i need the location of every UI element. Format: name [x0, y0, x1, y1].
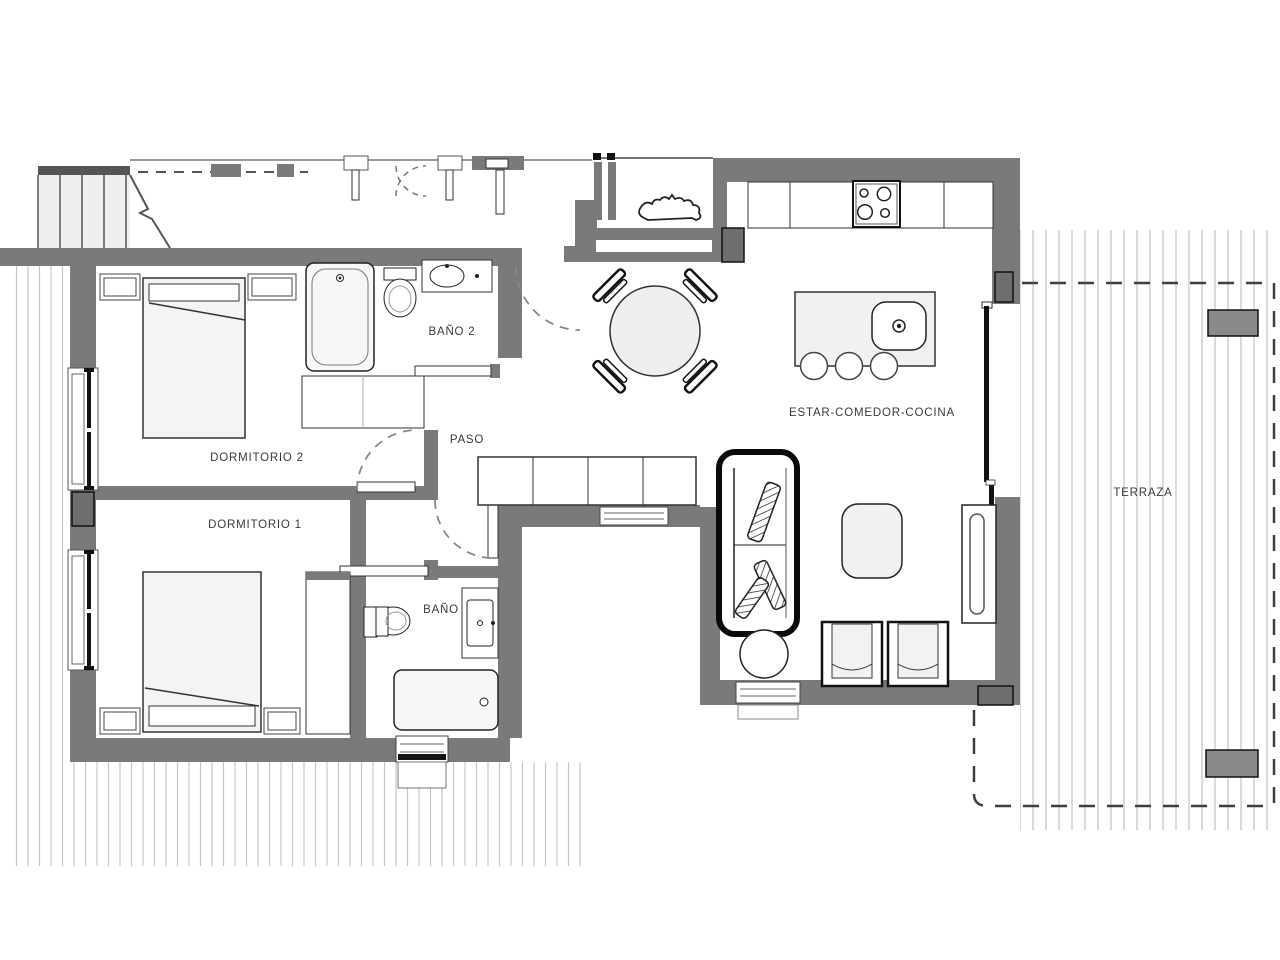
armchair [888, 622, 948, 686]
room-label-bano: BAÑO [423, 604, 459, 616]
window-bano [396, 736, 448, 788]
floor-plan-drawing [0, 0, 1280, 960]
floor-plan: BAÑO 2 PASO DORMITORIO 2 DORMITORIO 1 BA… [0, 0, 1280, 960]
armchair [822, 622, 882, 686]
terrace-planter-bottom [1206, 750, 1258, 777]
washbasin-bano [462, 588, 498, 658]
window-dining-south [600, 507, 668, 525]
deck-hatch-left [8, 263, 68, 763]
dining-table [592, 268, 718, 394]
bed-dormitorio2 [143, 278, 245, 438]
bathtub-bano [394, 670, 498, 730]
window-living-south [736, 682, 800, 719]
cooktop [853, 181, 900, 227]
landing [130, 156, 592, 214]
entry-ornament [639, 195, 700, 220]
toilet-bano [364, 607, 410, 637]
wardrobe-dormitorio1 [306, 572, 350, 734]
staircase [38, 166, 170, 248]
window-dormitorio1 [68, 550, 98, 670]
room-label-dormitorio2: DORMITORIO 2 [210, 452, 304, 464]
bed-dormitorio1 [143, 572, 261, 732]
window-dormitorio2 [68, 368, 98, 490]
kitchen-island [795, 292, 935, 380]
tv-unit [962, 505, 996, 623]
washbasin-bano2 [422, 260, 492, 292]
room-label-terraza: TERRAZA [1113, 487, 1172, 499]
room-label-estar: ESTAR-COMEDOR-COCINA [789, 407, 955, 419]
terrace-planter-top [1208, 310, 1258, 336]
dresser-bano2 [302, 376, 424, 428]
sofa [719, 452, 797, 634]
room-label-dormitorio1: DORMITORIO 1 [208, 519, 302, 531]
room-label-paso: PASO [450, 434, 484, 446]
toilet-bano2 [384, 268, 416, 317]
sideboard [478, 457, 696, 505]
bathtub-bano2 [306, 263, 374, 371]
coffee-table [842, 504, 902, 578]
room-label-bano2: BAÑO 2 [429, 326, 476, 338]
deck-hatch-bottom [8, 762, 588, 866]
side-table [740, 630, 788, 678]
